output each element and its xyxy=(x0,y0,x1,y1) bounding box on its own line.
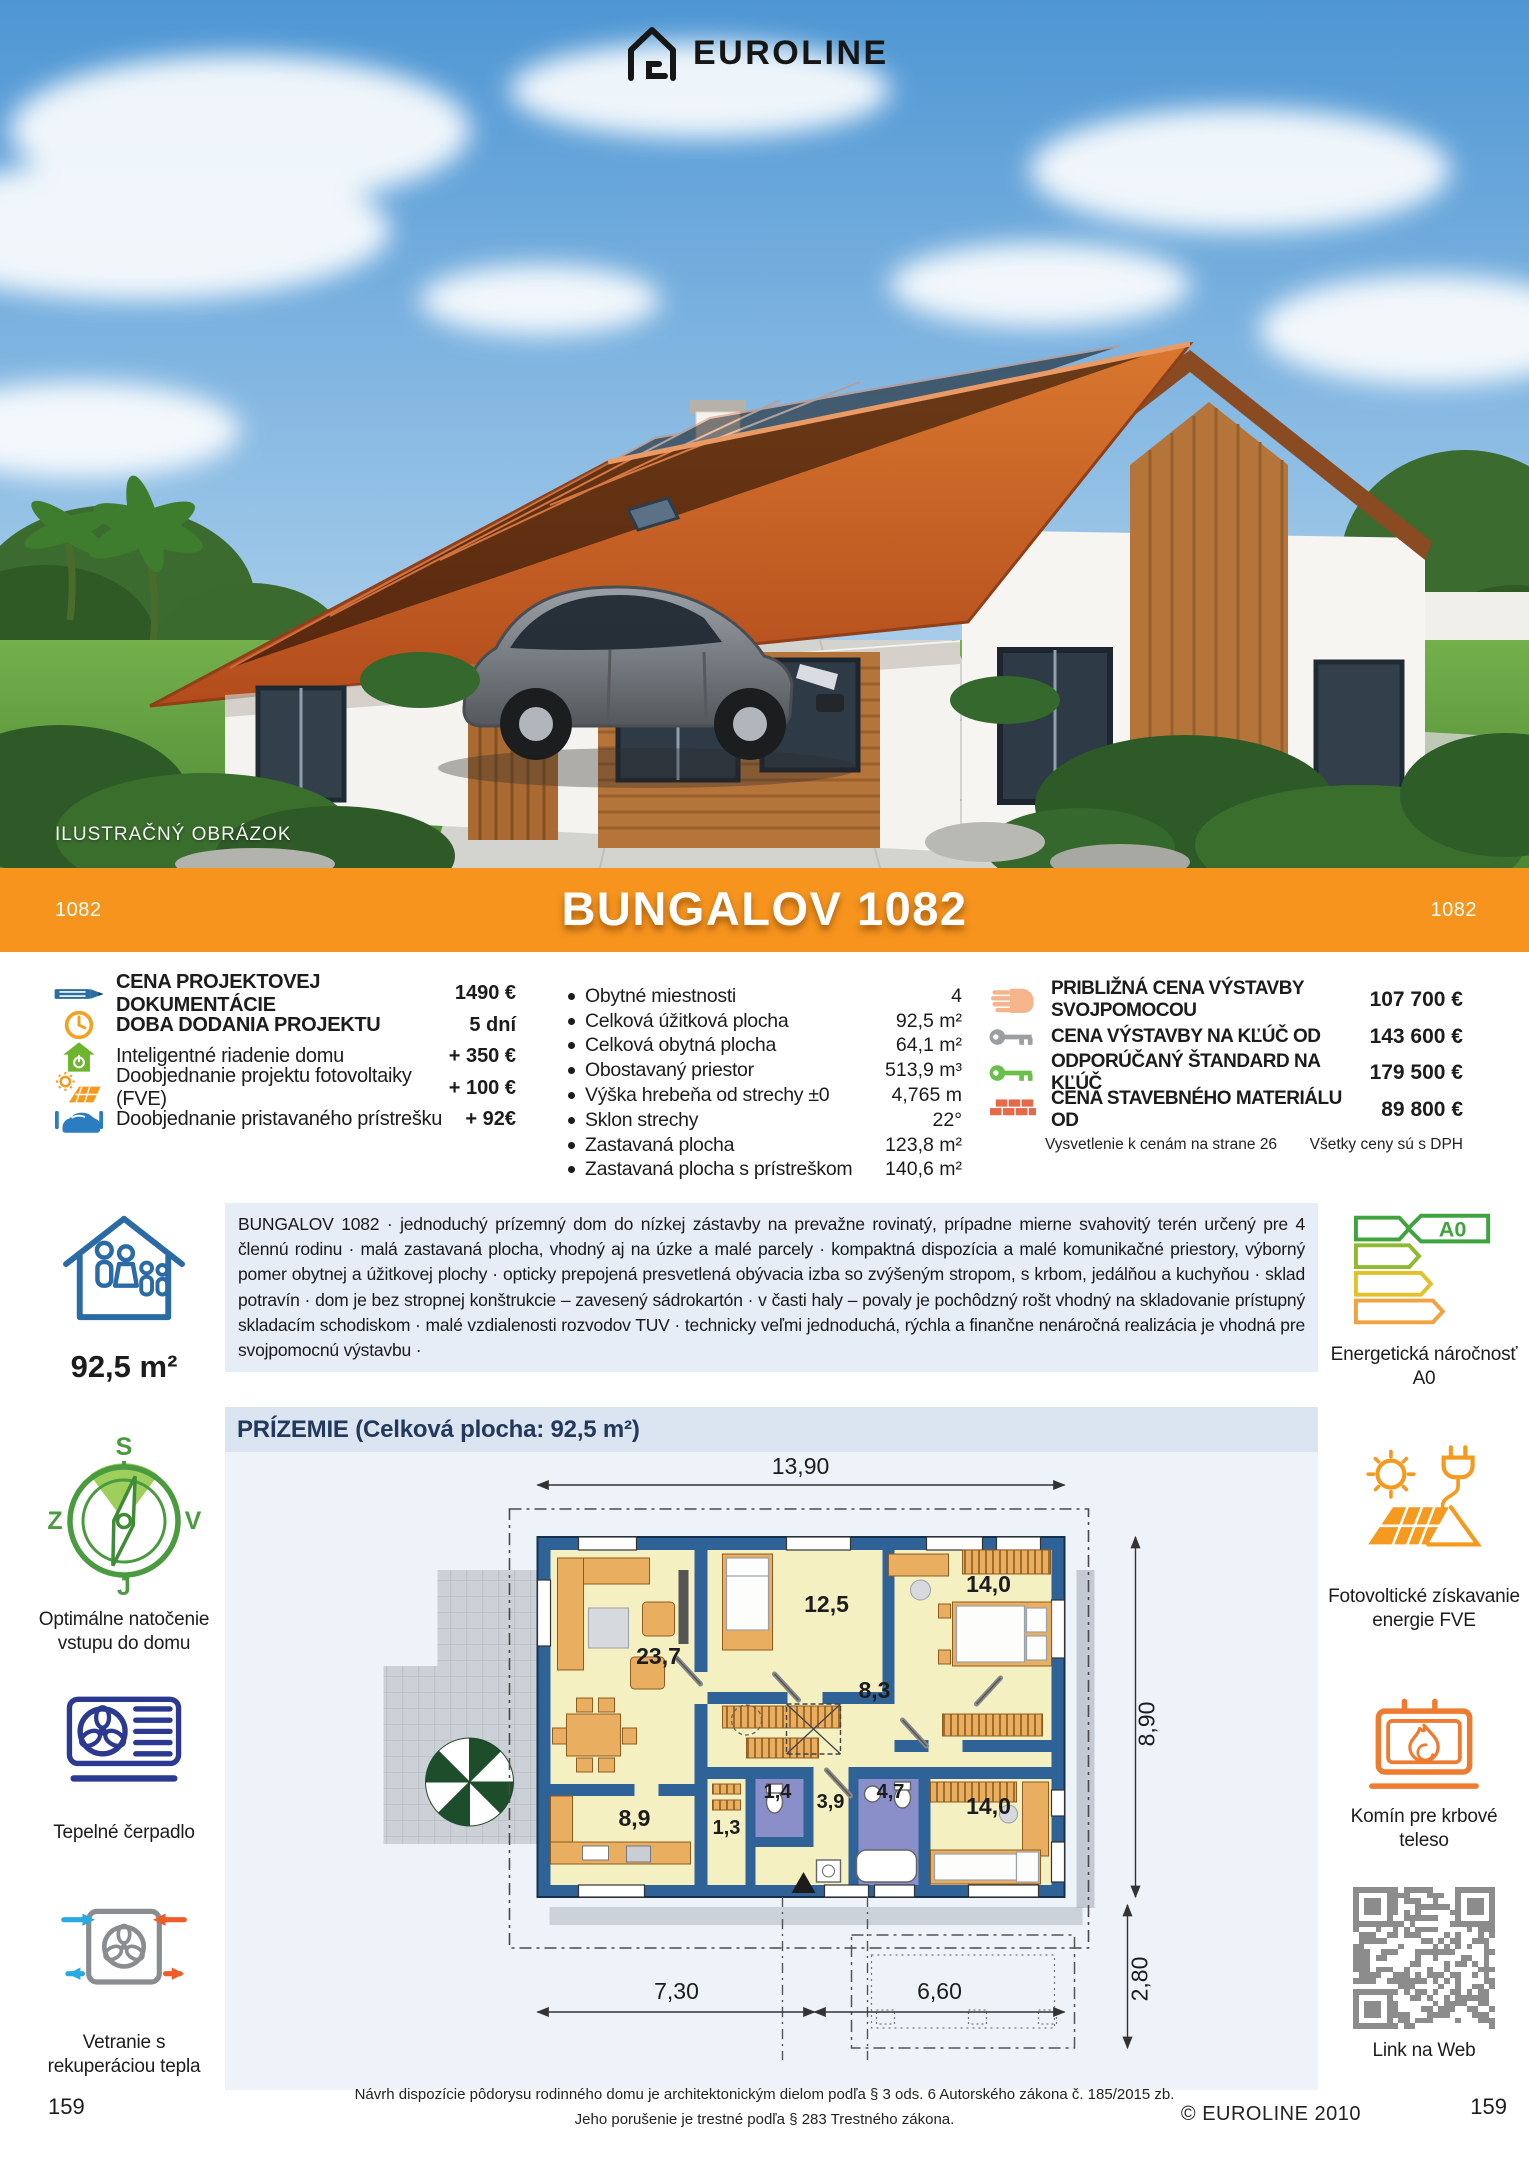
ventilation-caption: Vetranie s rekuperáciou tepla xyxy=(28,2031,220,2079)
dim-top: 13,90 xyxy=(772,1453,830,1479)
room-label-bedroom-right: 14,0 xyxy=(966,1571,1011,1597)
key-green-icon xyxy=(983,1061,1043,1085)
spec-value: 89 800 € xyxy=(1381,1098,1463,1122)
dim-bottom-right: 6,60 xyxy=(917,1978,962,2004)
clock-icon xyxy=(50,1009,108,1041)
spec-value: 123,8 m² xyxy=(885,1134,962,1157)
spec-value: 92,5 m² xyxy=(896,1010,962,1033)
energy-label-icon: A0 xyxy=(1328,1209,1520,1331)
dim-bottom-left: 7,30 xyxy=(654,1978,699,2004)
spec-value: 140,6 m² xyxy=(885,1158,962,1181)
energy-class-label: A0 xyxy=(1439,1216,1467,1241)
bullet-icon xyxy=(568,1092,575,1099)
price-notes: Vysvetlenie k cenám na strane 26 Všetky … xyxy=(983,1136,1463,1154)
spec-label: Obostavaný priestor xyxy=(585,1059,875,1082)
spec-value: 143 600 € xyxy=(1370,1025,1463,1049)
spec-value: 5 dní xyxy=(469,1014,516,1037)
spec-column-middle: Obytné miestnosti4 Celková úžitková ploc… xyxy=(556,984,962,1182)
spec-label: Výška hrebeňa od strechy ±0 xyxy=(585,1084,882,1107)
spec-value: 1490 € xyxy=(455,982,516,1005)
spec-row: CENA STAVEBNÉHO MATERIÁLU OD 89 800 € xyxy=(983,1092,1463,1129)
photovoltaic-caption: Fotovoltické získavanie energie FVE xyxy=(1328,1585,1520,1633)
room-label-kitchen: 8,9 xyxy=(619,1805,651,1831)
fireplace-caption: Komín pre krbové teleso xyxy=(1328,1805,1520,1853)
spec-label: Obytné miestnosti xyxy=(585,985,941,1008)
dim-right: 8,90 xyxy=(1134,1702,1160,1747)
footer-legal-line1: Návrh dispozície pôdorysu rodinného domu… xyxy=(0,2086,1529,2103)
page-number-left: 159 xyxy=(48,2094,85,2120)
brand-name: EUROLINE xyxy=(693,34,889,73)
spec-label: Zastavaná plocha s prístreškom xyxy=(585,1158,875,1181)
solar-panel-icon xyxy=(50,1072,108,1104)
bricks-icon xyxy=(983,1096,1043,1123)
left-icon-rail: 92,5 m² S V J Z Optimálne natočenie vstu… xyxy=(28,1203,220,2143)
room-label-living: 23,7 xyxy=(636,1643,681,1669)
bullet-icon xyxy=(568,1067,575,1074)
page-title: BUNGALOV 1082 xyxy=(0,881,1529,936)
spec-row: Výška hrebeňa od strechy ±04,765 m xyxy=(556,1083,962,1108)
spec-value: 179 500 € xyxy=(1370,1061,1463,1085)
spec-row: Doobjednanie pristavaného prístrešku + 9… xyxy=(50,1104,516,1136)
pencil-icon xyxy=(50,981,108,1007)
house-description: BUNGALOV 1082 · jednoduchý prízemný dom … xyxy=(225,1203,1318,1372)
illustration-note: ILUSTRAČNÝ OBRÁZOK xyxy=(55,824,292,846)
spec-label: Doobjednanie pristavaného prístrešku xyxy=(116,1108,457,1131)
qr-code xyxy=(1328,1885,1520,2031)
spec-row: Celková obytná plocha64,1 m² xyxy=(556,1034,962,1059)
area-value: 92,5 m² xyxy=(28,1349,220,1385)
hand-icon xyxy=(983,984,1043,1017)
bullet-icon xyxy=(568,993,575,1000)
spec-row: Obostavaný priestor513,9 m³ xyxy=(556,1058,962,1083)
ventilation-icon xyxy=(28,1901,220,2009)
spec-value: 107 700 € xyxy=(1370,988,1463,1012)
spec-row: ODPORÚČANÝ ŠTANDARD NA KĽÚČ 179 500 € xyxy=(983,1055,1463,1092)
compass-west: Z xyxy=(47,1507,62,1535)
compass-east: V xyxy=(185,1507,202,1535)
spec-value: 513,9 m³ xyxy=(885,1059,962,1082)
room-label-bedroom-top: 12,5 xyxy=(804,1591,849,1617)
spec-row: Obytné miestnosti4 xyxy=(556,984,962,1009)
spec-label: Celková úžitková plocha xyxy=(585,1010,886,1033)
compass-north: S xyxy=(116,1433,133,1461)
room-label-hall: 8,3 xyxy=(859,1677,891,1703)
right-icon-rail: A0 Energetická náročnosť A0 Fotovoltické… xyxy=(1328,1203,1520,2143)
spec-row: Celková úžitková plocha92,5 m² xyxy=(556,1009,962,1034)
house-photo xyxy=(0,0,1529,868)
catalog-page: EUROLINE ILUSTRAČNÝ OBRÁZOK 1082 BUNGALO… xyxy=(0,0,1529,2160)
key-gray-icon xyxy=(983,1025,1043,1049)
price-note-right: Všetky ceny sú s DPH xyxy=(1310,1136,1463,1154)
fireplace-icon xyxy=(1328,1697,1520,1797)
spec-label: DOBA DODANIA PROJEKTU xyxy=(116,1014,461,1037)
copyright: © EUROLINE 2010 xyxy=(1181,2103,1361,2126)
spec-value: + 100 € xyxy=(449,1077,516,1100)
compass-south: J xyxy=(117,1573,131,1599)
spec-value: + 350 € xyxy=(449,1045,516,1068)
room-label-wc: 1,4 xyxy=(764,1781,793,1803)
heat-pump-caption: Tepelné čerpadlo xyxy=(28,1821,220,1845)
bullet-icon xyxy=(568,1166,575,1173)
spec-label: Sklon strechy xyxy=(585,1109,923,1132)
spec-value: + 92€ xyxy=(465,1108,516,1131)
bullet-icon xyxy=(568,1142,575,1149)
bullet-icon xyxy=(568,1018,575,1025)
heat-pump-icon xyxy=(28,1695,220,1787)
energy-caption: Energetická náročnosť A0 xyxy=(1328,1343,1520,1391)
spec-row: Zastavaná plocha123,8 m² xyxy=(556,1133,962,1158)
floorplan-title: PRÍZEMIE (Celková plocha: 92,5 m²) xyxy=(225,1407,1318,1452)
spec-row: Doobjednanie projektu fotovoltaiky (FVE)… xyxy=(50,1073,516,1105)
dim-right-2: 2,80 xyxy=(1127,1957,1153,2002)
house-code-right: 1082 xyxy=(1431,899,1478,922)
spec-row: CENA PROJEKTOVEJ DOKUMENTÁCIE 1490 € xyxy=(50,978,516,1010)
spec-label: CENA PROJEKTOVEJ DOKUMENTÁCIE xyxy=(116,971,447,1017)
family-house-icon xyxy=(28,1207,220,1325)
spec-row: Sklon strechy22° xyxy=(556,1108,962,1133)
spec-column-left: CENA PROJEKTOVEJ DOKUMENTÁCIE 1490 € DOB… xyxy=(50,978,516,1136)
bullet-icon xyxy=(568,1117,575,1124)
carport-icon xyxy=(50,1105,108,1135)
page-number-right: 159 xyxy=(1470,2094,1507,2120)
spec-row: Zastavaná plocha s prístreškom140,6 m² xyxy=(556,1158,962,1183)
photovoltaic-icon xyxy=(1328,1443,1520,1559)
floorplan-area: 23,7 12,5 14,0 8,3 8,9 14,0 1,4 3,9 4,7 … xyxy=(225,1452,1318,2090)
compass-caption: Optimálne natočenie vstupu do domu xyxy=(28,1608,220,1656)
compass-icon: S V J Z xyxy=(28,1431,220,1599)
spec-value: 4 xyxy=(951,985,962,1008)
spec-label: CENA VÝSTAVBY NA KĽÚČ OD xyxy=(1051,1026,1362,1048)
spec-value: 64,1 m² xyxy=(896,1034,962,1057)
spec-label: PRIBLIŽNÁ CENA VÝSTAVBY SVOJPOMOCOU xyxy=(1051,978,1362,1022)
room-label-corridor: 3,9 xyxy=(817,1791,845,1813)
room-label-pantry: 1,3 xyxy=(713,1817,741,1839)
spec-row: DOBA DODANIA PROJEKTU 5 dní xyxy=(50,1010,516,1042)
spec-row: CENA VÝSTAVBY NA KĽÚČ OD 143 600 € xyxy=(983,1019,1463,1056)
spec-column-right: PRIBLIŽNÁ CENA VÝSTAVBY SVOJPOMOCOU 107 … xyxy=(983,982,1463,1154)
spec-label: Celková obytná plocha xyxy=(585,1034,886,1057)
room-label-bedroom-bottom: 14,0 xyxy=(966,1793,1011,1819)
room-label-bath: 4,7 xyxy=(877,1781,905,1803)
spec-row: PRIBLIŽNÁ CENA VÝSTAVBY SVOJPOMOCOU 107 … xyxy=(983,982,1463,1019)
title-banner: 1082 BUNGALOV 1082 1082 xyxy=(0,868,1529,952)
smart-home-icon xyxy=(50,1041,108,1073)
price-note-left: Vysvetlenie k cenám na strane 26 xyxy=(1045,1136,1277,1154)
euroline-house-icon xyxy=(625,24,679,82)
parasol-icon xyxy=(426,1738,514,1826)
qr-caption: Link na Web xyxy=(1328,2039,1520,2063)
euroline-logo: EUROLINE xyxy=(625,24,889,82)
spec-value: 22° xyxy=(933,1109,963,1132)
spec-value: 4,765 m xyxy=(892,1084,962,1107)
spec-label: Doobjednanie projektu fotovoltaiky (FVE) xyxy=(116,1065,441,1111)
spec-label: Zastavaná plocha xyxy=(585,1134,875,1157)
spec-label: CENA STAVEBNÉHO MATERIÁLU OD xyxy=(1051,1088,1373,1132)
floorplan-drawing: 23,7 12,5 14,0 8,3 8,9 14,0 1,4 3,9 4,7 … xyxy=(225,1452,1318,2090)
bullet-icon xyxy=(568,1042,575,1049)
